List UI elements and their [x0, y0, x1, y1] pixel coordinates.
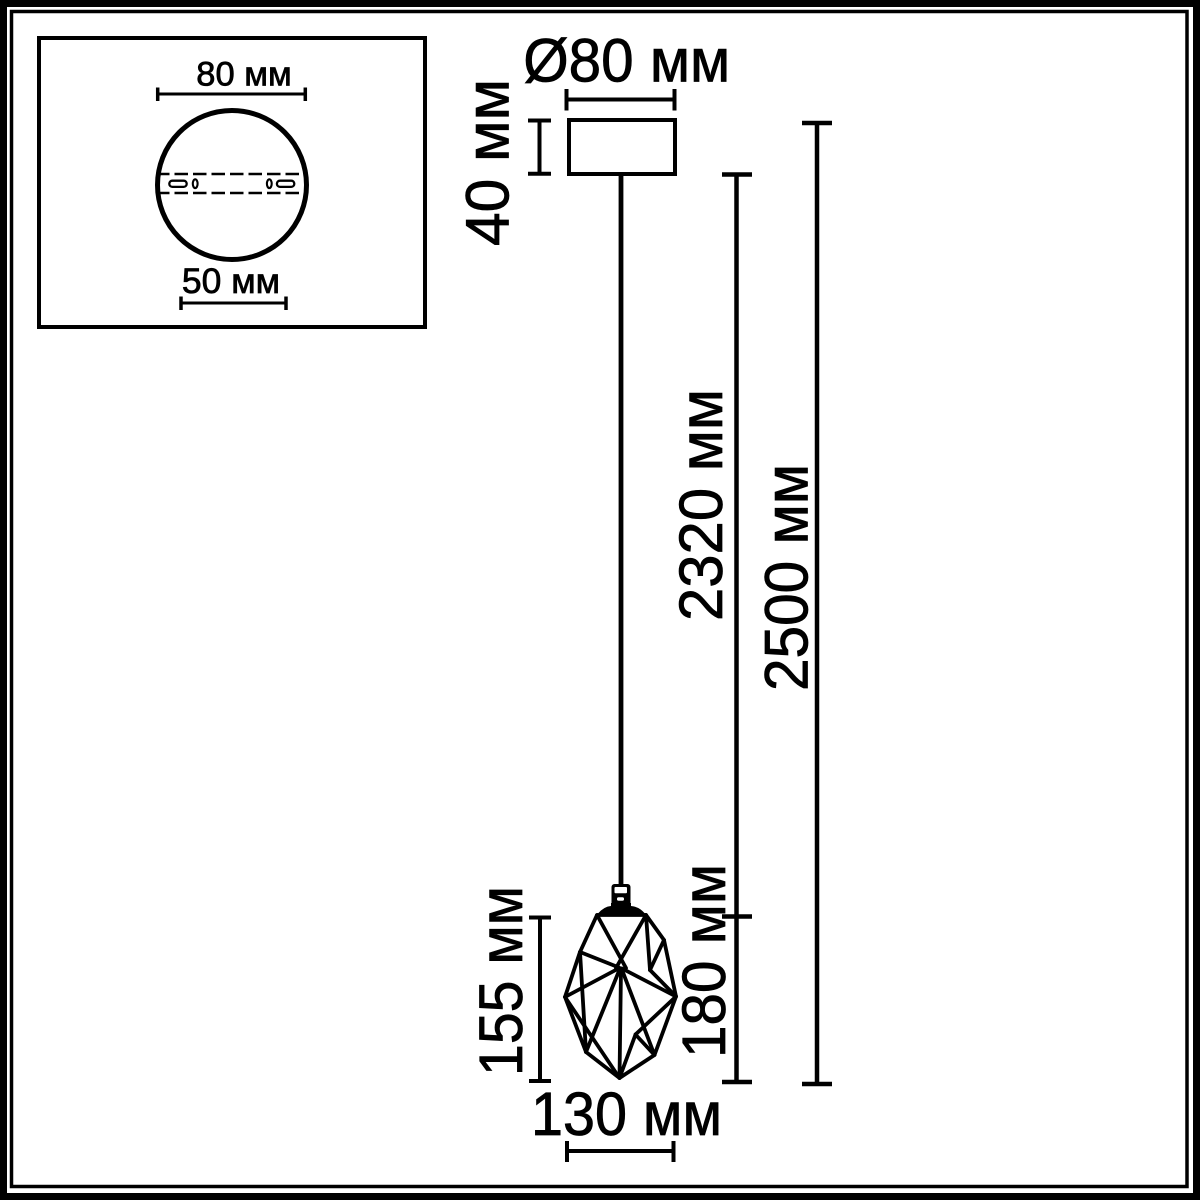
- svg-text:2500 мм: 2500 мм: [753, 464, 821, 691]
- svg-text:80 мм: 80 мм: [196, 56, 291, 94]
- svg-text:Ø80 мм: Ø80 мм: [523, 27, 730, 95]
- svg-text:130 мм: 130 мм: [531, 1080, 722, 1148]
- svg-text:40 мм: 40 мм: [454, 79, 522, 246]
- svg-text:2320 мм: 2320 мм: [667, 389, 735, 621]
- svg-text:180 мм: 180 мм: [670, 864, 738, 1058]
- svg-text:50 мм: 50 мм: [182, 261, 280, 301]
- svg-text:155 мм: 155 мм: [467, 886, 535, 1076]
